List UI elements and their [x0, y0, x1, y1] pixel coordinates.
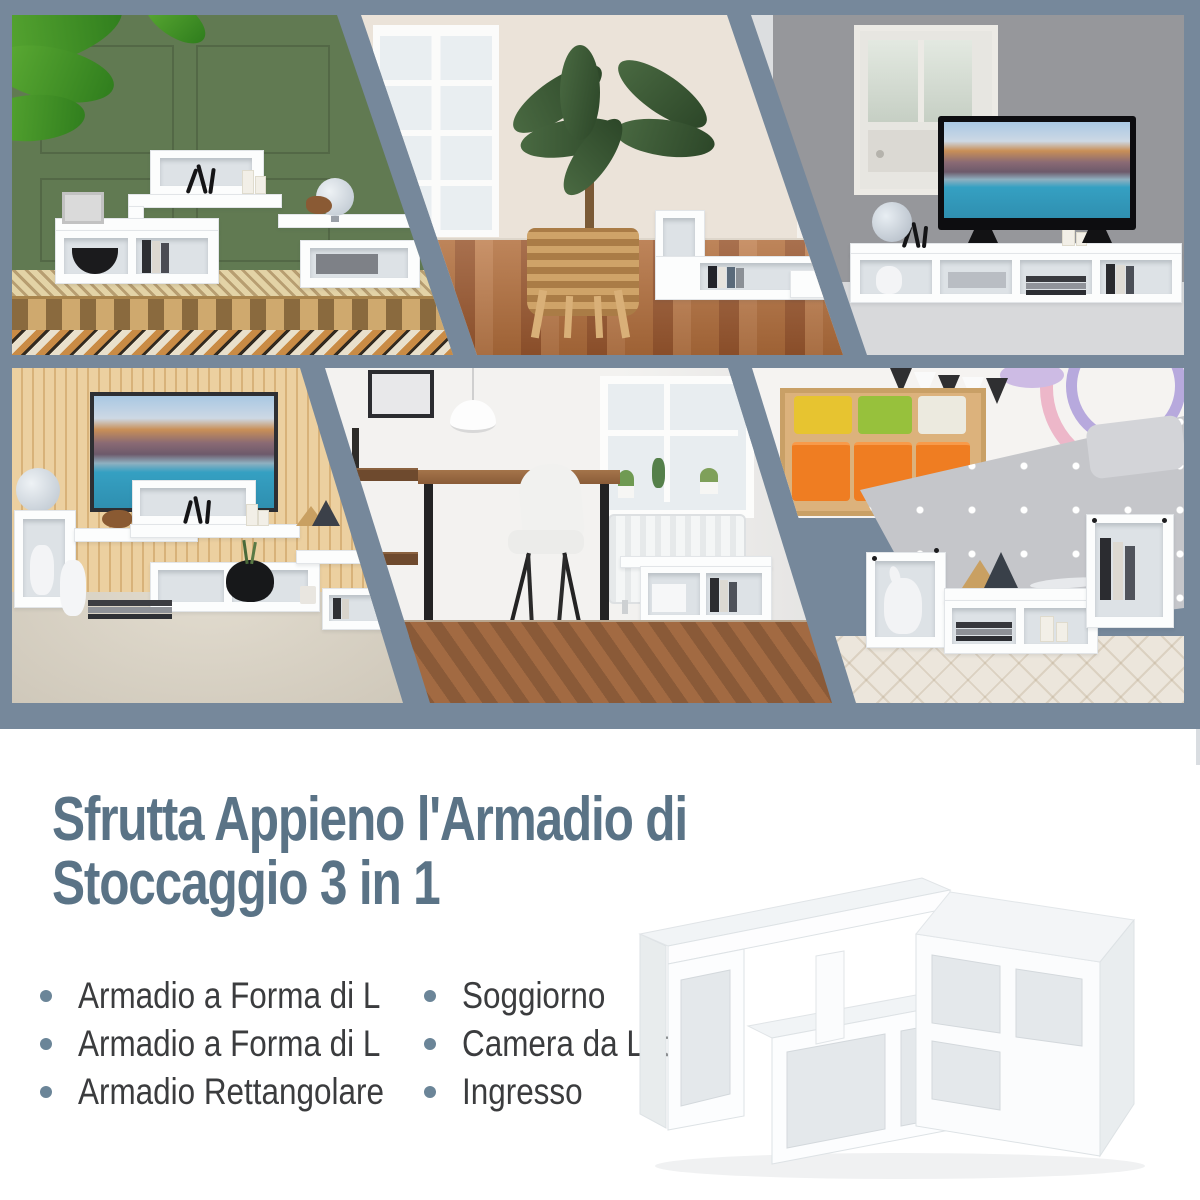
shelf-opening	[681, 970, 730, 1106]
plush-bunny	[884, 578, 922, 634]
candle	[242, 170, 254, 194]
palm-leaf	[560, 45, 600, 140]
book	[88, 607, 172, 613]
record-player	[948, 272, 1006, 288]
bin-green	[858, 396, 912, 434]
bullet-dot-icon	[424, 1038, 436, 1050]
product-shadow	[655, 1153, 1145, 1179]
dog-figurine	[306, 196, 332, 214]
globe-decor	[872, 202, 912, 242]
shelf-opening	[787, 1034, 885, 1148]
book	[956, 622, 1012, 628]
book	[88, 614, 172, 619]
screw-cap	[934, 548, 939, 553]
fox-figurine	[102, 510, 132, 528]
candle	[1056, 622, 1068, 642]
book	[1026, 283, 1086, 289]
white-figurine	[30, 545, 54, 595]
shelf-opening	[1016, 969, 1082, 1046]
plant-pot	[700, 482, 718, 494]
book	[161, 243, 169, 273]
rug-pattern-mid	[12, 296, 453, 331]
magazines	[316, 254, 378, 274]
book	[727, 267, 735, 288]
chair-seat	[508, 530, 584, 554]
book	[1106, 264, 1115, 294]
bullet-dot-icon	[40, 990, 52, 1002]
cloud-decal	[1000, 362, 1064, 388]
book	[1026, 276, 1086, 282]
shelf-opening	[158, 570, 224, 602]
book	[718, 267, 726, 288]
heading-line-1: Sfrutta Appieno l'Armadio di	[52, 788, 687, 852]
book	[142, 240, 151, 273]
book	[720, 580, 728, 612]
book	[342, 599, 349, 619]
page-edge-artifact	[1196, 729, 1200, 765]
list-item-label: Armadio a Forma di L	[78, 1023, 380, 1065]
shelf-board	[296, 550, 394, 564]
book	[1126, 266, 1134, 294]
book	[956, 629, 1012, 635]
bin-yellow	[794, 396, 852, 434]
bullet-dot-icon	[424, 1086, 436, 1098]
window-mullion	[664, 376, 670, 502]
window-mullion	[600, 430, 738, 436]
product-shelf-render	[620, 858, 1180, 1188]
bin-white	[918, 396, 966, 434]
white-figurine	[876, 266, 902, 294]
storage-box	[652, 584, 686, 612]
book	[1026, 290, 1086, 295]
globe-stand	[331, 216, 339, 222]
candle	[258, 510, 269, 526]
book	[736, 268, 744, 288]
radiator-leg	[622, 600, 628, 614]
shelf-board	[128, 194, 282, 208]
book	[708, 266, 717, 288]
list-item-label: Soggiorno	[462, 975, 605, 1017]
book	[360, 534, 371, 553]
shelf-board	[130, 524, 300, 538]
board-side-face	[640, 934, 666, 1128]
picture-frame-decor	[62, 192, 104, 224]
book	[88, 600, 172, 606]
knob	[876, 150, 884, 158]
book	[152, 241, 160, 273]
candle	[1040, 616, 1054, 642]
feature-list-left: Armadio a Forma di L Armadio a Forma di …	[40, 972, 438, 1116]
book	[956, 636, 1012, 641]
list-item-label: Armadio Rettangolare	[78, 1071, 384, 1113]
candle	[255, 176, 266, 194]
book	[1113, 542, 1123, 600]
shelf-opening	[160, 158, 252, 186]
desk-top	[418, 470, 620, 484]
book	[710, 578, 719, 612]
desk-leg	[600, 484, 609, 634]
white-figurine	[60, 560, 86, 616]
book	[333, 598, 341, 619]
lamp-cord	[472, 368, 474, 402]
screw-cap	[872, 556, 877, 561]
list-item-label: Ingresso	[462, 1071, 583, 1113]
book	[1116, 265, 1125, 294]
book	[1100, 538, 1111, 600]
photo-collage	[0, 0, 1200, 729]
wall-molding	[196, 45, 330, 154]
rug-pattern-bottom	[12, 330, 453, 355]
list-item: Armadio a Forma di L	[40, 1020, 438, 1068]
list-item: Armadio Rettangolare	[40, 1068, 438, 1116]
list-item-label: Armadio a Forma di L	[78, 975, 380, 1017]
tv-screen	[944, 122, 1130, 218]
book	[1125, 546, 1135, 600]
sill-plant	[652, 458, 665, 488]
window-mullion	[918, 40, 924, 122]
cup	[300, 586, 316, 604]
bin-orange	[792, 442, 850, 501]
screw-cap	[1162, 518, 1167, 523]
book	[729, 582, 737, 612]
wall-shelf-plank	[330, 468, 418, 481]
screw-cap	[1092, 518, 1097, 523]
plant-pot	[618, 486, 634, 498]
cabinet-side-face	[1100, 920, 1134, 1156]
shelf-board	[278, 214, 420, 228]
shelf-opening	[140, 488, 246, 516]
herringbone-floor	[325, 620, 832, 705]
product-infographic-page: Sfrutta Appieno l'Armadio di Stoccaggio …	[0, 0, 1200, 1200]
wall-frame	[368, 370, 434, 418]
heading-line-2: Stoccaggio 3 in 1	[52, 852, 687, 916]
list-item: Armadio a Forma di L	[40, 972, 438, 1020]
bullet-dot-icon	[424, 990, 436, 1002]
globe-decor	[16, 468, 60, 512]
shelf-opening	[932, 1041, 1000, 1110]
black-vase	[226, 560, 274, 602]
shelf-opening	[932, 955, 1000, 1033]
bullet-dot-icon	[40, 1086, 52, 1098]
step-connector	[816, 951, 844, 1044]
bullet-dot-icon	[40, 1038, 52, 1050]
candle	[246, 504, 258, 526]
